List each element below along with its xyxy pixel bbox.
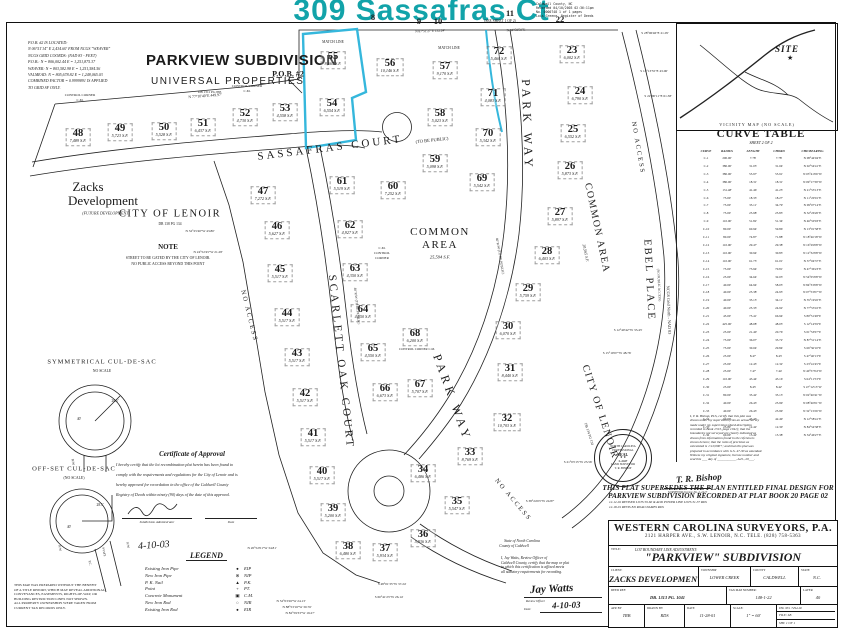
lot-square-footage: 5,517 S.F. bbox=[297, 399, 314, 404]
symmetrical-cds-dim1: 40' bbox=[77, 417, 81, 421]
curve-cell: S 66°36'10"E bbox=[792, 345, 833, 353]
approval-row: APP. BY TRB DRAWN BY RDS DATE 11-28-01 S… bbox=[609, 605, 837, 627]
scale-value: 1" = 60' bbox=[731, 613, 776, 618]
legend-abbr: PT. bbox=[244, 586, 264, 593]
title-row: TITLE: LOT BOUNDARY LINE ADJUSTMENT: "PA… bbox=[609, 546, 837, 567]
legend-label: Concrete Monument bbox=[145, 593, 231, 600]
lot-square-footage: 4,730 S.F. bbox=[237, 119, 254, 124]
lot-square-footage: 5,627 S.F. bbox=[269, 232, 286, 237]
curve-table-headers: CURVERADIUSLENGTHCHORDCHD BEARING bbox=[698, 149, 833, 153]
zacks-development-3: (FUTURE DEVELOPMENT) bbox=[82, 211, 129, 216]
curve-cell: N 46°50'03"E bbox=[792, 218, 833, 226]
curve-cell: 61.01' bbox=[766, 258, 792, 266]
curve-cell: 74.87' bbox=[740, 234, 766, 242]
sheet-number: SHT. 1 OF 1 bbox=[777, 620, 835, 627]
symmetrical-cds-sub: NO SCALE bbox=[93, 369, 111, 373]
adjacent-lot-22: 22 bbox=[556, 14, 565, 24]
symmetrical-cds-dim2: 26.5' bbox=[112, 399, 119, 403]
curve-cell: C-17 bbox=[698, 282, 714, 290]
curve-cell: 21.40' bbox=[740, 329, 766, 337]
certificate-title: Certificate of Approval bbox=[159, 450, 225, 458]
curve-cell: 40.00' bbox=[714, 400, 740, 408]
bearing-12: N 52°03'26"W 24.13' bbox=[276, 599, 305, 603]
curve-cell: 35.11' bbox=[740, 202, 766, 210]
control-corner-c3: CORNER bbox=[375, 256, 389, 260]
signature-underline bbox=[524, 597, 602, 598]
review-line: all statutory requirements for recording… bbox=[501, 570, 611, 575]
certificate-date-line: Date bbox=[205, 518, 257, 524]
supersedes-note: THIS PLAT SUPERSEDES THE PLAN ENTITLED F… bbox=[599, 484, 837, 509]
lot-square-footage: 4,550 S.F. bbox=[365, 354, 382, 359]
lot-66: 666,673 S.F. bbox=[373, 383, 398, 401]
lot-square-footage: 6,200 S.F. bbox=[407, 339, 424, 344]
curve-cell: S 12°14'59"E bbox=[792, 321, 833, 329]
curve-cell: 18.31' bbox=[766, 179, 792, 187]
curve-cell: 18.27' bbox=[766, 195, 792, 203]
deed-ref-label: DEED REF: bbox=[611, 588, 626, 592]
lot-square-footage: 6,403 S.F. bbox=[539, 257, 556, 262]
curve-cell: 24.95' bbox=[766, 289, 792, 297]
curve-cell: N 47°36'23"E bbox=[792, 266, 833, 274]
bearing-16: S 60°41'23"W 26.14' bbox=[375, 595, 403, 599]
bearing-7: S 12°40'42"W 33.43' bbox=[614, 328, 642, 332]
offset-cds-title: OFF-SET CUL-DE-SAC bbox=[32, 466, 116, 473]
lot-square-footage: 5,897 S.F. bbox=[552, 218, 569, 223]
lot-square-footage: 5,519 S.F. bbox=[334, 187, 351, 192]
curve-cell: 8.43' bbox=[766, 353, 792, 361]
bearing-11: N 20°52'01"W 34.81' bbox=[247, 546, 276, 550]
note-line-1: STREET TO BE GATED BY THE CITY OF LENOIR… bbox=[126, 256, 211, 260]
adjacent-lot-8: 8 bbox=[371, 12, 375, 22]
date-cell: DATE 11-28-01 bbox=[685, 605, 731, 627]
curve-cell: N 07°53'07"W bbox=[792, 289, 833, 297]
legend-label: P. K. Nail bbox=[145, 580, 231, 587]
lot-56: 5610,146 S.F. bbox=[377, 58, 404, 76]
control-corner-c2: CONTROL bbox=[374, 251, 390, 255]
lot-71: 714,083 S.F. bbox=[481, 88, 506, 106]
pob-note-line: TO GRID SF ONLY. bbox=[28, 85, 150, 91]
city-of-lenoir-west: CITY OF LENOIR bbox=[119, 209, 221, 220]
curve-cell: 30.94' bbox=[740, 250, 766, 258]
lot-33: 338,769 S.F. bbox=[458, 447, 483, 465]
zacks-development-2: Development bbox=[68, 193, 138, 209]
township-label: TOWNSHIP bbox=[701, 568, 716, 572]
lot-square-footage: 5,342 S.F. bbox=[480, 139, 497, 144]
tax-map-value: 148-1-22 bbox=[727, 595, 800, 600]
legend-symbol-icon: + bbox=[231, 586, 244, 593]
approved-by-cell: APP. BY TRB bbox=[609, 605, 645, 627]
bearing-13: N 88°53'16"W 30.76' bbox=[282, 605, 311, 609]
lot-square-footage: 5,517 S.F. bbox=[279, 319, 296, 324]
curve-cell: 75.00' bbox=[714, 210, 740, 218]
curve-cell: 25.00' bbox=[714, 361, 740, 369]
curve-cell: 25.35' bbox=[740, 305, 766, 313]
scale-cell: SCALE: 1" = 60' bbox=[731, 605, 777, 627]
curve-cell: 75.00' bbox=[714, 266, 740, 274]
curve-cell: 25.38' bbox=[740, 289, 766, 297]
adjacent-lot-11: 11 bbox=[506, 8, 514, 18]
curve-cell: 55.91' bbox=[766, 171, 792, 179]
curve-cell: 45.00' bbox=[714, 313, 740, 321]
curve-cell: 40.00' bbox=[714, 305, 740, 313]
curve-cell: C-2 bbox=[698, 163, 714, 171]
curve-cell: 75.00' bbox=[714, 337, 740, 345]
lot-square-footage: 5,873 S.F. bbox=[562, 172, 579, 177]
curve-cell: 80.00' bbox=[714, 226, 740, 234]
pob-coordinates-note: P.O.B. #2 IS LOCATED:N 06°51'14" E 2,434… bbox=[28, 40, 150, 91]
revision-2: 12-18-01 REVIS ED ROAD NAMES RDS bbox=[599, 505, 837, 509]
certificate-body: I hereby certify that the lot recombinat… bbox=[116, 460, 250, 500]
curve-table-rows: C-1200.00'7.78'7.78'N 08°44'04"EC-2380.0… bbox=[698, 155, 833, 440]
curve-cell: N 54°05'08"W bbox=[792, 274, 833, 282]
curve-cell: 40.00' bbox=[714, 282, 740, 290]
lot-27: 275,897 S.F. bbox=[548, 207, 573, 225]
lot-60: 607,252 S.F. bbox=[381, 181, 406, 199]
curve-cell: N 21°53'13"E bbox=[792, 187, 833, 195]
firm-address: 2121 HARPER AVE., S.W. LENOIR, N.C. TELE… bbox=[609, 534, 837, 539]
lot-45: 455,517 S.F. bbox=[268, 264, 293, 282]
control-corner-a1: CONTROL CORNER bbox=[232, 84, 263, 88]
legend-label: Point bbox=[145, 586, 231, 593]
curve-cell: 200.00' bbox=[714, 155, 740, 163]
lot-square-footage: 8,769 S.F. bbox=[462, 458, 479, 463]
legend-abbr: EIP bbox=[244, 566, 264, 573]
lot-23: 236,002 S.F. bbox=[560, 45, 585, 63]
bearing-18: N 24°52'45"W 21.28' bbox=[193, 250, 222, 254]
lot-67: 675,707 S.F. bbox=[408, 379, 433, 397]
lot-square-footage: 5,934 S.F. bbox=[377, 554, 394, 559]
client-cell: CLIENT: ZACKS DEVELOPMENT bbox=[609, 567, 699, 586]
approved-by-label: APP. BY bbox=[611, 606, 622, 610]
lot-28: 286,403 S.F. bbox=[535, 246, 560, 264]
legend-symbol-icon: ▲ bbox=[231, 580, 244, 587]
bearing-17: N 32°25'40"W 43.80' bbox=[185, 229, 214, 233]
curve-cell: C-11 bbox=[698, 234, 714, 242]
curve-cell: C-16 bbox=[698, 274, 714, 282]
legend-symbol-icon: ○ bbox=[231, 600, 244, 607]
curve-cell: N 08°44'04"E bbox=[792, 155, 833, 163]
curve-cell: C-29 bbox=[698, 376, 714, 384]
approved-by-value: TRB bbox=[609, 613, 644, 618]
curve-cell: 58.05' bbox=[766, 282, 792, 290]
lot-34: 346,486 S.F. bbox=[411, 464, 436, 482]
curve-cell: 25.00' bbox=[714, 329, 740, 337]
lot-47: 477,272 S.F. bbox=[251, 186, 276, 204]
curve-cell: 7.47' bbox=[740, 368, 766, 376]
curve-cell: C-5 bbox=[698, 187, 714, 195]
lot-58: 585,023 S.F. bbox=[428, 108, 453, 126]
curve-cell: N 09°17'39"W bbox=[792, 179, 833, 187]
legend-abbr: C.M. bbox=[244, 593, 264, 600]
curve-cell: 110.00' bbox=[714, 250, 740, 258]
curve-cell: 25.99' bbox=[766, 400, 792, 408]
curve-cell: S 47°40'13"E bbox=[792, 353, 833, 361]
curve-cell: 64.94' bbox=[740, 282, 766, 290]
curve-cell: 8.45' bbox=[740, 384, 766, 392]
curve-cell: 35.13' bbox=[766, 392, 792, 400]
surveyor-cert-line: seal this ___ day of ___________, A.D., … bbox=[690, 457, 838, 461]
curve-cell: C-25 bbox=[698, 345, 714, 353]
lot-square-footage: 7,489 S.F. bbox=[70, 139, 87, 144]
curve-cell: 31.05' bbox=[740, 163, 766, 171]
lot-59: 595,098 S.F. bbox=[423, 154, 448, 172]
control-corner-lot68: CONTROL CORNER C.M. bbox=[399, 347, 435, 351]
legend-symbol-icon: ▣ bbox=[231, 593, 244, 600]
layer-cell: LAYER 40 bbox=[801, 587, 835, 604]
review-officer-signature: Jay Watts bbox=[530, 582, 574, 596]
lot-square-footage: 10,703 S.F. bbox=[498, 424, 517, 429]
curve-cell: 61.75' bbox=[740, 258, 766, 266]
lot-square-footage: 6,554 S.F. bbox=[324, 109, 341, 114]
lot-square-footage: 5,936 S.F. bbox=[415, 540, 432, 545]
review-officer-role: Review Officer bbox=[526, 599, 545, 603]
lot-49: 495,723 S.F. bbox=[108, 123, 133, 141]
lot-square-footage: 5,759 S.F. bbox=[520, 294, 537, 299]
common-area-label-1: COMMON bbox=[410, 226, 470, 238]
curve-cell: C-24 bbox=[698, 337, 714, 345]
legend-label: New Iron Rod bbox=[145, 600, 231, 607]
curve-cell: 41.25' bbox=[766, 187, 792, 195]
curve-cell: C-8 bbox=[698, 210, 714, 218]
offset-cds-pc: P.C. bbox=[88, 560, 93, 566]
curve-cell: 110.00' bbox=[714, 242, 740, 250]
lot-38: 386,480 S.F. bbox=[336, 541, 361, 559]
lot-square-footage: 10,146 S.F. bbox=[381, 69, 400, 74]
site-label: SITE bbox=[775, 44, 799, 54]
curve-cell: 48.08' bbox=[740, 321, 766, 329]
curve-cell: 25.00' bbox=[714, 368, 740, 376]
lot-square-footage: 5,023 S.F. bbox=[432, 119, 449, 124]
curve-cell: N 37°04'37"E bbox=[792, 258, 833, 266]
symmetrical-cds-title: SYMMETRICAL CUL-DE-SAC bbox=[47, 359, 156, 366]
vicinity-map: SITE ★ VICINITY MAP (NO SCALE) bbox=[676, 23, 838, 131]
lot-square-footage: 5,517 S.F. bbox=[305, 439, 322, 444]
township-value: LOWER CREEK bbox=[699, 575, 750, 580]
control-corner-b2: C.M. bbox=[77, 98, 84, 102]
drawing-number: DW. NO. 7294-02 bbox=[777, 605, 835, 612]
curve-cell: 75.00' bbox=[714, 195, 740, 203]
lot-29: 295,759 S.F. bbox=[516, 283, 541, 301]
curve-header-cell: LENGTH bbox=[740, 149, 766, 153]
county-cell: COUNTY CALDWELL bbox=[751, 567, 799, 586]
curve-header-cell: CHD BEARING bbox=[792, 149, 833, 153]
curve-cell: 80.00' bbox=[714, 234, 740, 242]
lot-square-footage: 6,480 S.F. bbox=[340, 552, 357, 557]
drawn-by-cell: DRAWN BY RDS bbox=[645, 605, 685, 627]
city-of-lenoir-west-db: DB 138 PG 134 bbox=[158, 222, 181, 226]
curve-cell: 59.86' bbox=[766, 226, 792, 234]
curve-cell: 29.38' bbox=[766, 242, 792, 250]
layer-value: 40 bbox=[801, 595, 835, 600]
curve-cell: 25.85' bbox=[766, 210, 792, 218]
township-cell: TOWNSHIP LOWER CREEK bbox=[699, 567, 751, 586]
curve-cell: N 87°51'14"E bbox=[792, 337, 833, 345]
legend-abbr: NIR bbox=[244, 600, 264, 607]
curve-cell: N 12°32'08"W bbox=[792, 250, 833, 258]
offset-cds-dim1: 28.5' bbox=[97, 503, 104, 507]
lot-40: 405,517 S.F. bbox=[310, 466, 335, 484]
bearing-6: S 22°00'11"E 61.38' bbox=[644, 94, 671, 98]
curve-table-subtitle: SHEET 2 OF 2 bbox=[702, 141, 820, 145]
curve-cell: C-10 bbox=[698, 226, 714, 234]
certificate-date-handwritten: 4-10-03 bbox=[138, 539, 170, 552]
lot-51: 516,437 S.F. bbox=[191, 118, 216, 136]
curve-cell: C-4 bbox=[698, 179, 714, 187]
lot-26: 265,873 S.F. bbox=[558, 161, 583, 179]
match-line-2: MATCH LINE bbox=[438, 46, 460, 50]
lot-square-footage: 6,002 S.F. bbox=[564, 56, 581, 61]
curve-cell: C-22 bbox=[698, 321, 714, 329]
curve-cell: C-3 bbox=[698, 171, 714, 179]
curve-cell: C-7 bbox=[698, 202, 714, 210]
curve-cell: N 03°41'06"W bbox=[792, 171, 833, 179]
note-line-2: NO PUBLIC ACCESS BEYOND THIS POINT bbox=[131, 262, 204, 266]
curve-cell: 34.11' bbox=[766, 297, 792, 305]
curve-cell: S 23°41'45"E bbox=[792, 361, 833, 369]
lot-31: 318,440 S.F. bbox=[498, 363, 523, 381]
curve-cell: 7.78' bbox=[740, 155, 766, 163]
curve-header-cell: CHORD bbox=[766, 149, 792, 153]
certificate-line: Registry of Deeds within ninety (90) day… bbox=[116, 490, 250, 500]
curve-cell: 35.15' bbox=[740, 297, 766, 305]
curve-cell: C-14 bbox=[698, 258, 714, 266]
stamp-line: Lois Greene, Register of Deeds bbox=[536, 14, 656, 18]
curve-cell: 40.00' bbox=[714, 289, 740, 297]
disclaimer-line: CURRENT TAX RECORDS ONLY. bbox=[14, 606, 126, 611]
curve-table-divider bbox=[676, 130, 677, 462]
bearing-9: S 21°03'15"W 23.56' bbox=[564, 460, 592, 464]
curve-cell: 35.72' bbox=[766, 337, 792, 345]
lot-36: 365,936 S.F. bbox=[411, 529, 436, 547]
subdivision-name: PARKVIEW SUBDIVISION bbox=[146, 52, 337, 69]
curve-cell: C-21 bbox=[698, 313, 714, 321]
curve-cell: N 40°57'04"W bbox=[792, 368, 833, 376]
lot-square-footage: 5,517 S.F. bbox=[314, 477, 331, 482]
lot-61: 615,519 S.F. bbox=[330, 176, 355, 194]
surveyor-certification: I, T. R. Bishop, PLS, certify that this … bbox=[690, 414, 838, 462]
date-underline bbox=[540, 612, 602, 613]
lot-square-footage: 5,723 S.F. bbox=[112, 134, 129, 139]
lot-square-footage: 8,440 S.F. bbox=[502, 374, 519, 379]
legend-symbol-icon: ● bbox=[231, 566, 244, 573]
lot-square-footage: 5,098 S.F. bbox=[427, 165, 444, 170]
common-area-sf: 25,594 S.F. bbox=[430, 255, 450, 260]
certificate-line: I hereby certify that the lot recombinat… bbox=[116, 460, 250, 470]
curve-cell: N 13°01'58"E bbox=[792, 226, 833, 234]
bearing-3: N 84°58'50"E bbox=[506, 28, 525, 33]
lot-42: 425,517 S.F. bbox=[293, 388, 318, 406]
lot-square-footage: 6,070 S.F. bbox=[500, 332, 517, 337]
curve-cell: C-27 bbox=[698, 361, 714, 369]
curve-cell: 26.43' bbox=[740, 400, 766, 408]
lot-37: 375,934 S.F. bbox=[373, 543, 398, 561]
curve-cell: N 16°29'08"W bbox=[792, 242, 833, 250]
curve-cell: 32.03' bbox=[766, 274, 792, 282]
curve-cell: 43.16' bbox=[766, 376, 792, 384]
curve-cell: C-26 bbox=[698, 353, 714, 361]
curve-cell: 29.84' bbox=[766, 345, 792, 353]
curve-cell: 36.07' bbox=[740, 337, 766, 345]
lot-24: 246,790 S.F. bbox=[568, 86, 593, 104]
curve-cell: 110.00' bbox=[714, 376, 740, 384]
lot-square-footage: 5,542 S.F. bbox=[474, 184, 491, 189]
plat-sheet: 309 Sassafras Ct Caldwell County, NCReco… bbox=[0, 0, 843, 632]
tax-map-cell: TAX MAP NUMBER: 148-1-22 bbox=[727, 587, 801, 604]
curve-cell: 70.81' bbox=[766, 266, 792, 274]
curve-cell: N 08°40'01"W bbox=[792, 400, 833, 408]
curve-cell: N 11°20'01"E bbox=[792, 195, 833, 203]
curve-cell: 24.92' bbox=[766, 305, 792, 313]
lot-square-footage: 9,170 S.F. bbox=[437, 72, 454, 77]
deed-ref-value: DB. 1313 PG. 1041 bbox=[609, 595, 726, 600]
curve-cell: 110.00' bbox=[714, 218, 740, 226]
curve-cell: N 02°54'41"E bbox=[792, 163, 833, 171]
curve-cell: C-6 bbox=[698, 195, 714, 203]
lot-54: 546,554 S.F. bbox=[320, 98, 345, 116]
curve-cell: 43.44' bbox=[740, 376, 766, 384]
curve-cell: 425.00' bbox=[714, 321, 740, 329]
lot-52: 524,730 S.F. bbox=[233, 108, 258, 126]
curve-cell: 380.00' bbox=[714, 171, 740, 179]
curve-cell: 25.00' bbox=[714, 353, 740, 361]
lot-43: 435,517 S.F. bbox=[285, 348, 310, 366]
curve-cell: S 47°12'13"W bbox=[792, 384, 833, 392]
curve-cell: C-32 bbox=[698, 400, 714, 408]
curve-cell: C-31 bbox=[698, 392, 714, 400]
plat-title: "PARKVIEW" SUBDIVISION bbox=[609, 550, 837, 565]
curve-cell: 25.98' bbox=[740, 210, 766, 218]
curve-cell: 131.48' bbox=[714, 187, 740, 195]
lot-48: 487,489 S.F. bbox=[66, 128, 91, 146]
lot-square-footage: 4,350 S.F. bbox=[347, 274, 364, 279]
curve-cell: 66.94' bbox=[766, 313, 792, 321]
lot-72: 725,460 S.F. bbox=[487, 46, 512, 64]
lot-square-footage: 6,673 S.F. bbox=[377, 394, 394, 399]
lot-50: 505,528 S.F. bbox=[152, 122, 177, 140]
bearing-14: N 82°59'33"W 19.27' bbox=[285, 611, 314, 615]
firm-row: WESTERN CAROLINA SURVEYORS, P.A. 2121 HA… bbox=[609, 521, 837, 546]
lot-62: 624,927 S.F. bbox=[338, 220, 363, 238]
lot-square-footage: 5,707 S.F. bbox=[412, 390, 429, 395]
curve-cell: 55.97' bbox=[740, 171, 766, 179]
curve-cell: 48.05' bbox=[766, 321, 792, 329]
review-date-label: Date: bbox=[524, 607, 531, 611]
curve-table-title: CURVE TABLE bbox=[702, 128, 820, 140]
tax-map-label: TAX MAP NUMBER: bbox=[729, 588, 757, 592]
curve-cell: 30.85' bbox=[766, 250, 792, 258]
curve-cell: 18.31' bbox=[740, 179, 766, 187]
lot-square-footage: 6,790 S.F. bbox=[572, 97, 589, 102]
curve-cell: 8.42' bbox=[766, 384, 792, 392]
surveyor-title-block: WESTERN CAROLINA SURVEYORS, P.A. 2121 HA… bbox=[608, 520, 838, 628]
state-value: N.C. bbox=[799, 575, 835, 580]
lot-70: 705,342 S.F. bbox=[476, 128, 501, 146]
bearing-10: S 38°24'03"W 24.87' bbox=[526, 499, 554, 503]
legend-abbr: NIP bbox=[244, 573, 264, 580]
adjacent-lot-9: 9 bbox=[417, 16, 421, 26]
certificate-line: hereby approved for recordation in the o… bbox=[116, 480, 250, 490]
curve-cell: 30.04' bbox=[740, 345, 766, 353]
curve-cell: C-28 bbox=[698, 368, 714, 376]
curve-cell: N 18°46'18"W bbox=[792, 234, 833, 242]
county-label: COUNTY bbox=[753, 568, 766, 572]
curve-cell: C-9 bbox=[698, 218, 714, 226]
note-title: NOTE bbox=[158, 243, 178, 251]
curve-cell: 51.34' bbox=[766, 218, 792, 226]
curve-cell: N 02°40'41"W bbox=[792, 392, 833, 400]
state-line-1: State of North Carolina bbox=[504, 539, 540, 543]
lot-square-footage: 5,517 S.F. bbox=[272, 275, 289, 280]
